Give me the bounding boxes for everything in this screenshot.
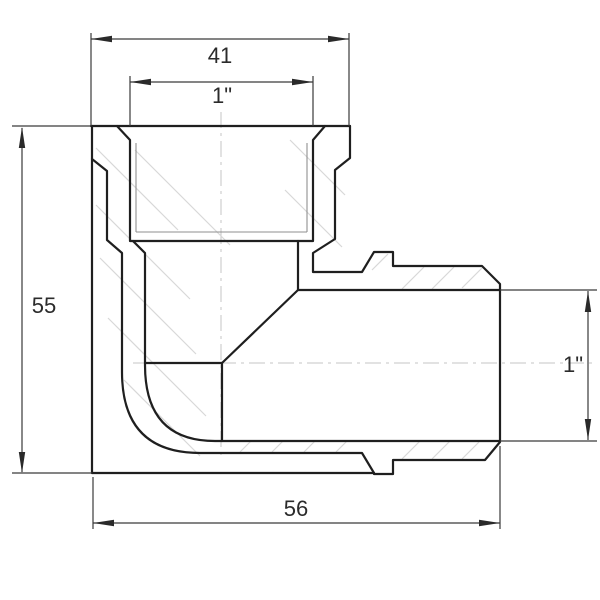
arrowhead-bottom xyxy=(19,452,25,473)
dimension-right-thread: 1" xyxy=(500,290,597,441)
dim-label-41: 41 xyxy=(208,43,232,68)
arrowhead-right xyxy=(328,36,349,42)
dim-label-1in-right: 1" xyxy=(563,352,583,377)
elbow-fitting-drawing: 41 1" 55 1" 56 xyxy=(0,0,600,600)
dimension-bottom-length: 56 xyxy=(93,446,500,529)
left-step-and-outer-bend xyxy=(92,159,374,473)
male-pipe-and-right-contour xyxy=(313,126,500,474)
arrowhead-left xyxy=(91,36,112,42)
dim-label-55: 55 xyxy=(32,293,56,318)
arrowhead-right xyxy=(292,79,313,85)
bore-corner-chamfer xyxy=(222,290,298,363)
arrowhead-left xyxy=(130,79,151,85)
arrowhead-top xyxy=(19,127,25,148)
arrowhead-bottom xyxy=(585,419,591,440)
technical-drawing-canvas: 41 1" 55 1" 56 xyxy=(0,0,600,600)
dim-label-56: 56 xyxy=(284,496,308,521)
dimension-left-height: 55 xyxy=(12,126,92,473)
body-outline xyxy=(91,126,500,474)
arrowhead-right xyxy=(479,520,500,526)
centerlines xyxy=(133,112,597,458)
arrowhead-top xyxy=(585,291,591,312)
dim-label-1in-top: 1" xyxy=(212,83,232,108)
arrowhead-left xyxy=(93,520,114,526)
